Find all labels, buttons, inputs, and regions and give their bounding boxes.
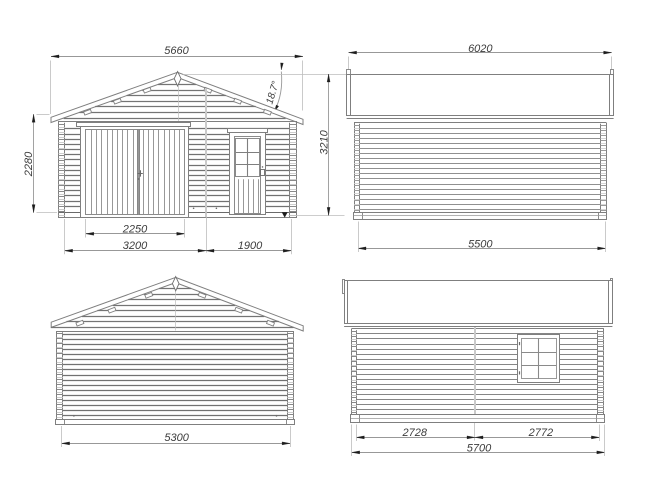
svg-text:5700: 5700 [467, 442, 492, 454]
svg-text:3210: 3210 [319, 129, 331, 154]
svg-text:5300: 5300 [164, 432, 189, 444]
svg-text:2280: 2280 [23, 151, 35, 177]
svg-text:2728: 2728 [401, 427, 427, 439]
svg-text:2772: 2772 [528, 427, 553, 439]
svg-text:3200: 3200 [123, 240, 148, 252]
svg-text:5500: 5500 [468, 239, 493, 251]
svg-text:6020: 6020 [468, 43, 493, 55]
svg-text:1900: 1900 [238, 240, 263, 252]
svg-text:2250: 2250 [122, 224, 148, 236]
svg-text:5660: 5660 [164, 45, 189, 57]
